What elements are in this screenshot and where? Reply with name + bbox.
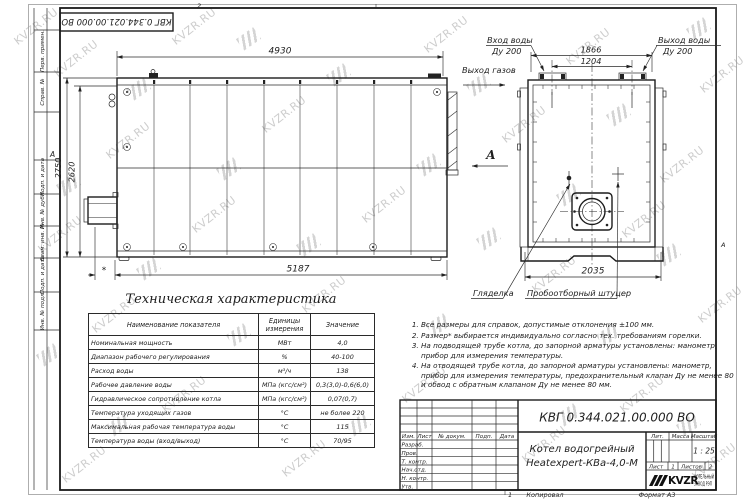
zone-right: А (720, 241, 725, 249)
note-item: На отводящей трубе котла, до запорной ар… (421, 361, 739, 390)
param-name: Рабочее давление воды (89, 378, 259, 392)
param-value: 0,07(0,7) (311, 392, 375, 406)
notes-list: Все размеры для справок, допустимые откл… (404, 320, 739, 391)
dim-1204: 1204 (581, 56, 602, 66)
zone-bottom: 1 (508, 491, 512, 499)
param-name: Температура уходящих газов (89, 406, 259, 420)
tb-col-list: Лист (416, 434, 432, 440)
note-text: На подводящей трубе котла, до запорной а… (421, 341, 717, 360)
param-unit: МПа (кгс/см²) (259, 378, 311, 392)
table-row: Диапазон рабочего регулирования%40-100 (89, 350, 375, 364)
dim-2750: 2750 (53, 158, 63, 179)
water-nozzles (539, 73, 646, 108)
stamp-perv-primen: Перв. примен. (40, 30, 46, 72)
dim-5187: 5187 (287, 265, 310, 275)
col-header-units: Единицы измерения (259, 314, 311, 336)
tb-scale-label: Масштаб (691, 434, 718, 440)
dim-1866: 1866 (581, 45, 602, 55)
param-value: 138 (311, 364, 375, 378)
tb-product-line2: Heatexpert-КВа-4,0-М (526, 458, 638, 469)
table-row: Максимальная рабочая температура воды°С1… (89, 420, 375, 434)
tb-row-razrab: Разраб. (402, 443, 424, 449)
title-block: Изм. Лист № докум. Подп. Дата Разраб. Пр… (400, 400, 718, 490)
table-row: Номинальная мощностьМВт4,0 (89, 336, 375, 350)
tech-table-title: Техническая характеристика (110, 292, 352, 307)
kvzr-logo-icon (649, 475, 668, 486)
table-header-row: Наименование показателя Единицы измерени… (89, 314, 375, 336)
top-fitting-right (428, 74, 441, 79)
param-name: Максимальная рабочая температура воды (89, 420, 259, 434)
dim-2620: 2620 (67, 162, 77, 183)
drawing-sheet: KVZR.RUKVZR.RUKVZR.RUKVZR.RUKVZR.RUKVZR.… (0, 0, 750, 500)
param-name: Расход воды (89, 364, 259, 378)
table-row: Температура воды (вход/выход)°С70/95 (89, 434, 375, 448)
tb-row-utv: Утв. (402, 484, 414, 490)
tb-col-podp: Подп. (476, 434, 493, 440)
tb-sheets-value: 2 (709, 464, 713, 470)
note-item: Размер* выбирается индивидуально согласн… (421, 331, 739, 341)
note-item: На подводящей трубе котла, до запорной а… (421, 341, 739, 360)
note-text: Размер* выбирается индивидуально согласн… (421, 331, 702, 340)
format-label: Формат А3 (638, 491, 675, 499)
dim-4930: 4930 (269, 47, 292, 57)
col-header-value: Значение (311, 314, 375, 336)
param-name: Гидравлическое сопротивление котла (89, 392, 259, 406)
param-name: Диапазон рабочего регулирования (89, 350, 259, 364)
table-row: Гидравлическое сопротивление котлаМПа (к… (89, 392, 375, 406)
dim-asterisk: * (102, 266, 107, 276)
param-value: 40-100 (311, 350, 375, 364)
param-unit: °С (259, 434, 311, 448)
gas-duct (446, 92, 458, 175)
bolt-symbols (124, 89, 441, 251)
side-view-dimensions: 4930 2750 2620 5187 * (53, 47, 447, 281)
sampling-text: Пробоотборный штуцер (527, 288, 631, 298)
tb-col-docnum: № докум. (437, 434, 466, 440)
bottom-margin: Копировал Формат А3 (526, 491, 675, 499)
bolt-ticks (533, 85, 650, 242)
company-line1: КОТЕЛЬНЫЙ (694, 474, 714, 481)
note-text: На отводящей трубе котла, до запорной ар… (421, 361, 734, 389)
left-side-nozzle (109, 94, 115, 107)
top-doc-number-box: КВГ 0.344.021.00.000 ВО (60, 13, 173, 31)
copied-label: Копировал (526, 491, 563, 499)
stamp-inv-podl: Инв. № подл. (40, 291, 46, 330)
water-out-text: Выход воды (658, 35, 711, 45)
water-in-text: Вход воды (487, 35, 533, 45)
water-out-dn: Ду 200 (662, 46, 692, 56)
tb-row-prov: Пров. (402, 451, 418, 457)
tb-mass-label: Масса (672, 434, 690, 440)
tb-sheet-label: Лист (648, 464, 664, 470)
tb-lit-label: Лит. (650, 434, 664, 440)
stamp-sprav-no: Справ. № (40, 78, 46, 105)
sight-glass-label: Гляделка (471, 184, 570, 299)
sight-glass-text: Гляделка (473, 288, 514, 298)
sight-glass-port (567, 171, 572, 185)
note-text: Все размеры для справок, допустимые откл… (421, 320, 654, 329)
tb-sheet-value: 1 (671, 464, 675, 470)
param-value: 4,0 (311, 336, 375, 350)
company-line2: ЗАВОД РЭП (694, 482, 712, 488)
sampling-label: Пробоотборный штуцер (525, 182, 631, 299)
zone-top: 2 (197, 2, 201, 10)
table-row: Рабочее давление водыМПа (кгс/см²)0,3(3,… (89, 378, 375, 392)
param-unit: МВт (259, 336, 311, 350)
gas-out-text: Выход газов (462, 65, 516, 75)
stamp-vzam-inv: Взам. инв. № (40, 223, 46, 261)
tb-row-nkontr: Н. контр. (402, 476, 429, 482)
table-row: Расход водым³/ч138 (89, 364, 375, 378)
col-header-name: Наименование показателя (89, 314, 259, 336)
side-stamp-column: Перв. примен. Справ. № Подп. и дата Инв.… (40, 30, 46, 331)
gas-out-label: Выход газов (462, 65, 516, 85)
tb-doc-number: КВГ 0.344.021.00.000 ВО (539, 411, 695, 425)
burner-opening (84, 193, 118, 229)
water-out-label: Выход воды Ду 200 (643, 35, 721, 71)
param-unit: м³/ч (259, 364, 311, 378)
water-in-dn: Ду 200 (491, 46, 521, 56)
tech-table-wrap: Наименование показателя Единицы измерени… (88, 313, 375, 448)
note-item: Все размеры для справок, допустимые откл… (421, 320, 739, 330)
tb-col-data: Дата (499, 434, 515, 440)
param-unit: °С (259, 420, 311, 434)
param-unit: МПа (кгс/см²) (259, 392, 311, 406)
tb-scale-value: 1 : 25 (693, 447, 715, 456)
sampling-fitting (612, 167, 624, 181)
tech-characteristics-table: Наименование показателя Единицы измерени… (88, 313, 375, 448)
param-unit: % (259, 350, 311, 364)
param-value: 70/95 (311, 434, 375, 448)
param-value: 115 (311, 420, 375, 434)
stamp-podp-data-2: Подп. и дата (40, 255, 46, 294)
boiler-side-view: 4930 2750 2620 5187 * Выход газов (53, 47, 516, 281)
doc-number-rotated: КВГ 0.344.021.00.000 ВО (61, 16, 172, 26)
tb-row-tkontr: Т. контр. (402, 459, 428, 465)
param-unit: °С (259, 406, 311, 420)
table-row: Температура уходящих газов°Сне более 220 (89, 406, 375, 420)
tb-sheets-label: Листов (680, 464, 702, 470)
param-value: не более 220 (311, 406, 375, 420)
sight-glass-flange (560, 193, 624, 230)
param-name: Температура воды (вход/выход) (89, 434, 259, 448)
tb-product-line1: Котел водогрейный (530, 444, 635, 455)
param-value: 0,3(3,0)-0,6(6,0) (311, 378, 375, 392)
view-a-marker: А (472, 148, 508, 166)
dim-2035: 2035 (582, 267, 605, 277)
param-name: Номинальная мощность (89, 336, 259, 350)
view-a-letter: А (485, 148, 496, 162)
top-edge-bolts (153, 80, 412, 84)
stamp-podp-data-1: Подп. и дата (40, 157, 46, 196)
company-logo: KVZR КОТЕЛЬНЫЙ ЗАВОД РЭП (649, 474, 714, 488)
tb-col-izm: Изм. (402, 434, 415, 440)
tb-row-nachotd: Нач.отд. (402, 468, 427, 474)
